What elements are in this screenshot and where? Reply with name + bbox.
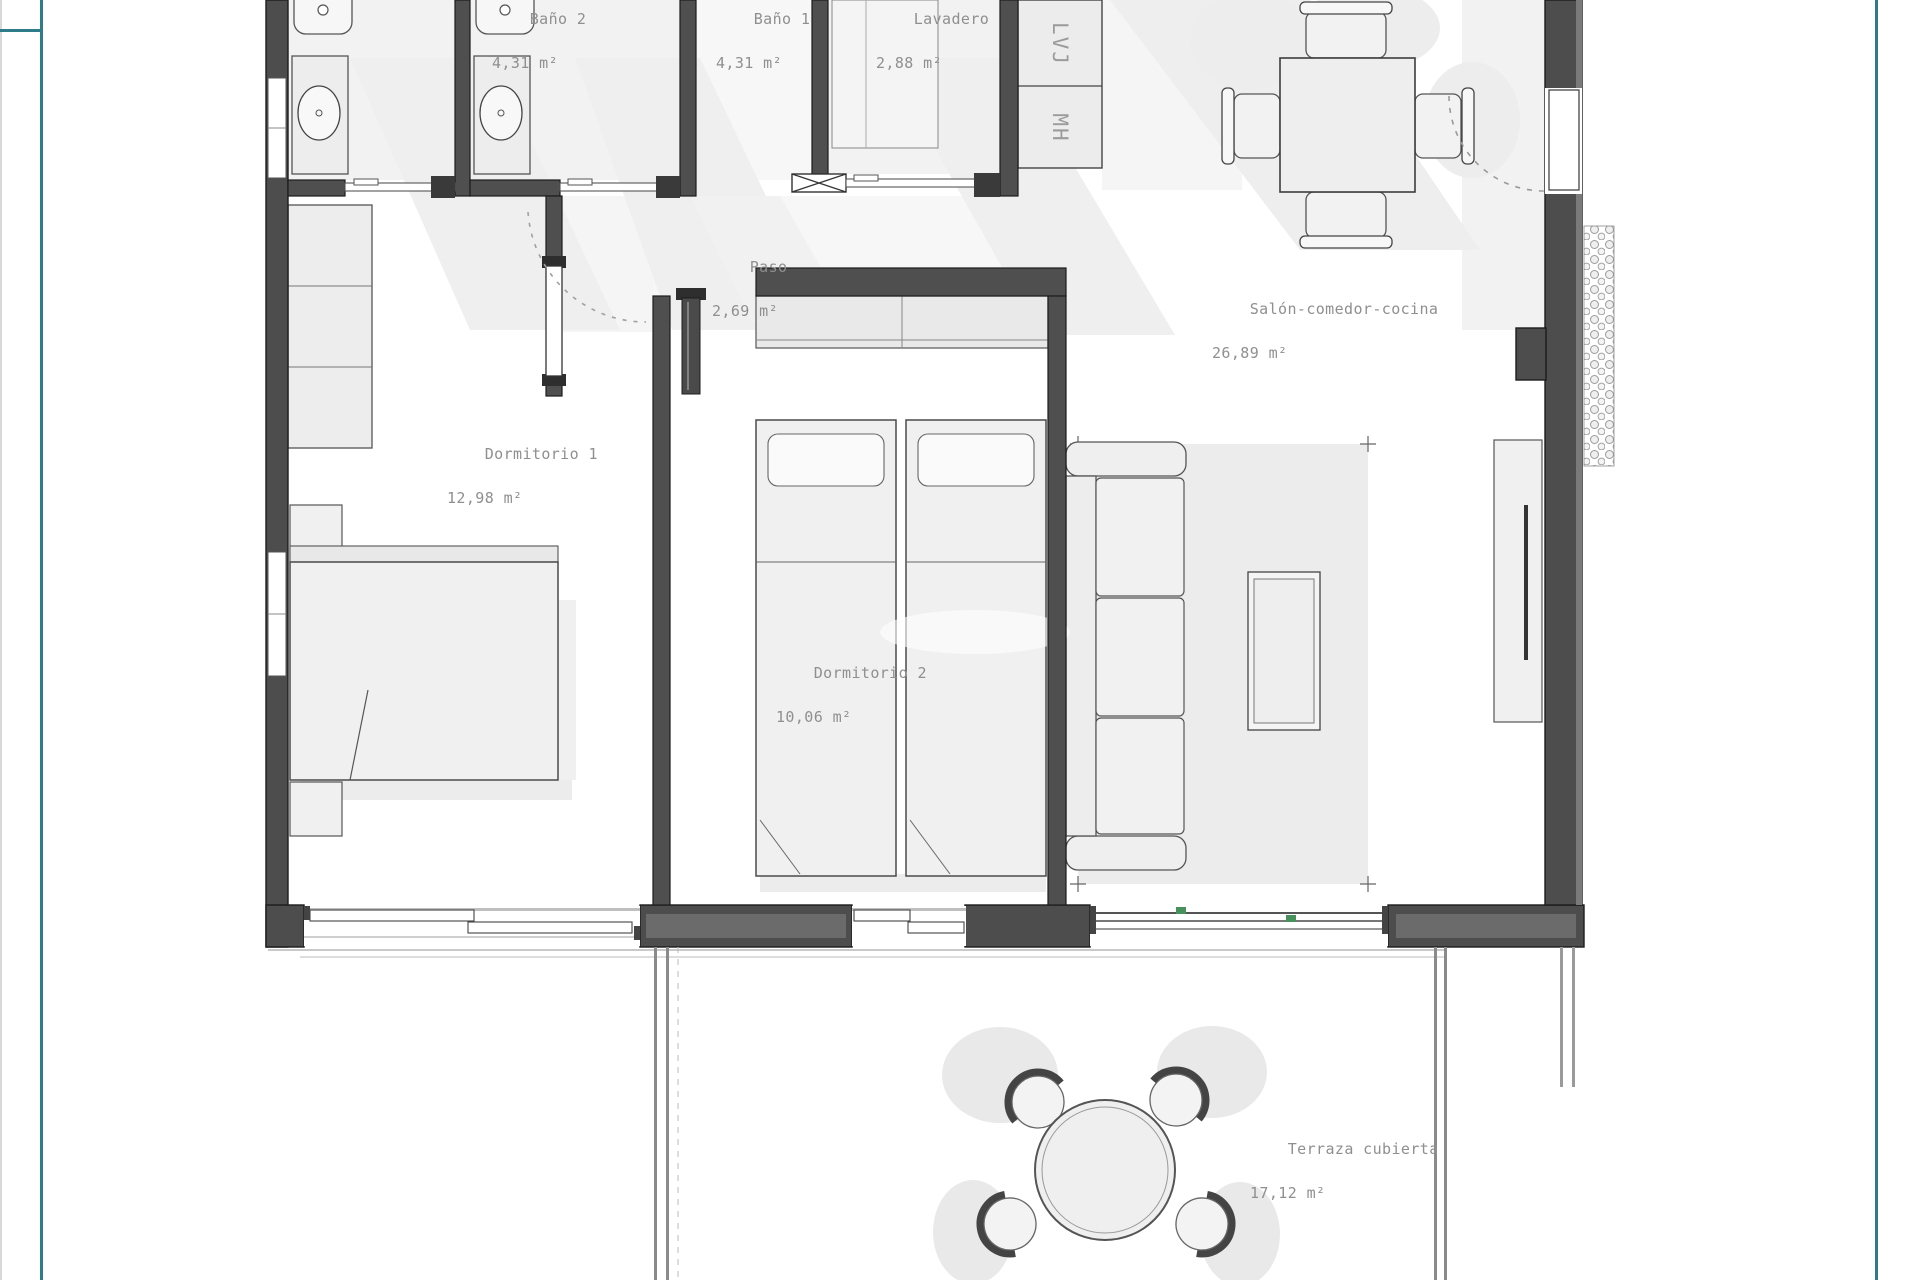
room-area: 2,88 m² (876, 52, 989, 74)
room-area: 12,98 m² (447, 487, 598, 509)
bathroom2-fixtures (292, 0, 352, 174)
room-area: 4,31 m² (492, 52, 586, 74)
terrace-table-set (975, 1058, 1237, 1259)
door-bedroom1 (542, 256, 566, 386)
room-label-dormitorio2: Dormitorio 2 10,06 m² (776, 640, 927, 772)
room-name: Dormitorio 2 (814, 664, 927, 682)
appliance-label-micro-oven: MH (1048, 113, 1072, 142)
room-name: Dormitorio 1 (485, 445, 598, 463)
bedroom2-wardrobe (756, 296, 1048, 348)
gravel-hatch (1584, 226, 1614, 466)
appliance-label-dishwasher: LVJ (1048, 22, 1072, 66)
room-label-terraza: Terraza cubierta 17,12 m² (1250, 1116, 1439, 1248)
wall-end-post (792, 174, 846, 192)
room-area: 26,89 m² (1212, 342, 1438, 364)
room-area: 17,12 m² (1250, 1182, 1439, 1204)
floor-plan-drawing (0, 0, 1920, 1280)
bedroom1-wardrobe (288, 205, 372, 448)
tv-sideboard (1494, 440, 1542, 722)
room-label-lavadero: Lavadero 2,88 m² (876, 0, 989, 118)
room-name: Paso (750, 258, 788, 276)
room-label-paso: Paso 2,69 m² (712, 234, 787, 366)
room-name: Terraza cubierta (1288, 1140, 1439, 1158)
room-label-salon: Salón-comedor-cocina 26,89 m² (1212, 276, 1438, 408)
floor-plan-sheet: Baño 2 4,31 m² Baño 1 4,31 m² Lavadero 2… (0, 0, 1920, 1280)
room-name: Salón-comedor-cocina (1250, 300, 1439, 318)
room-name: Baño 1 (754, 10, 811, 28)
room-label-bano1: Baño 1 4,31 m² (716, 0, 810, 118)
room-area: 2,69 m² (712, 300, 787, 322)
room-label-dormitorio1: Dormitorio 1 12,98 m² (447, 421, 598, 553)
sofa (1066, 442, 1186, 870)
room-name: Lavadero (914, 10, 989, 28)
terrace-sliding-door (1090, 906, 1388, 946)
room-label-bano2: Baño 2 4,31 m² (492, 0, 586, 118)
room-name: Baño 2 (530, 10, 587, 28)
coffee-table (1248, 572, 1320, 730)
sliding-door-laundry (846, 173, 1000, 197)
room-area: 10,06 m² (776, 706, 927, 728)
room-area: 4,31 m² (716, 52, 810, 74)
